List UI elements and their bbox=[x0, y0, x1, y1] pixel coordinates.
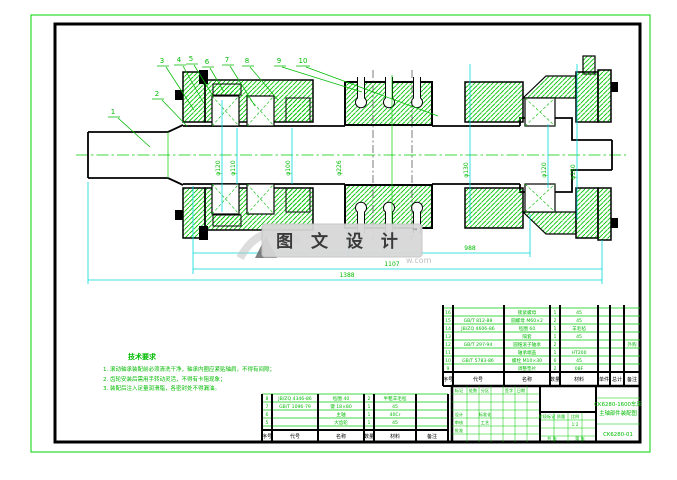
technical-notes: 技术要求 1. 滚动轴承装配前必须清洗干净，轴承内圈应紧贴轴肩，不得有间隙； 2… bbox=[103, 352, 275, 392]
scale-value: 1:2 bbox=[572, 422, 579, 427]
cell: 1 bbox=[554, 310, 557, 316]
drawing-title-line2: 主轴部件装配图 bbox=[599, 409, 637, 417]
cell: 8 bbox=[266, 396, 269, 402]
cap-bolt bbox=[175, 210, 183, 220]
balloon-10: 10 bbox=[299, 57, 308, 65]
cell: 40Cr bbox=[390, 412, 401, 418]
header-cell: 材料 bbox=[390, 433, 400, 440]
cell: 9 bbox=[447, 366, 450, 372]
watermark-corner-mark: ™ bbox=[412, 228, 418, 235]
notes-heading: 技术要求 bbox=[128, 352, 157, 361]
cell: 14 bbox=[445, 326, 451, 332]
cell: 7 bbox=[266, 404, 269, 410]
bom-right-cells: 16锁紧螺母145 15GB/T 812-88圆螺母 M60×2245 14JB… bbox=[445, 309, 637, 372]
cell: 45 bbox=[576, 358, 582, 364]
dim-phi-right-outer: φ130 bbox=[463, 162, 470, 178]
header-cell: 序号 bbox=[443, 376, 453, 383]
balloon-3: 3 bbox=[160, 57, 164, 65]
drawing-number: CK6280-01 bbox=[603, 432, 633, 438]
note-line: 1. 滚动轴承装配前必须清洗干净，轴承内圈应紧贴轴肩，不得有间隙； bbox=[103, 365, 275, 373]
cell: 毡圈 40 bbox=[333, 395, 350, 402]
dim-phi-gear: φ226 bbox=[336, 160, 343, 176]
cell: 2 bbox=[554, 318, 557, 324]
header-cell: 总计 bbox=[612, 376, 622, 383]
cell: 1 bbox=[368, 412, 371, 418]
field-label: 共 张 bbox=[547, 435, 558, 442]
cell: 调整垫片 bbox=[518, 365, 537, 372]
watermark-url: w.com bbox=[406, 256, 432, 265]
cell: 6 bbox=[554, 358, 557, 364]
field-label: 标记 bbox=[455, 387, 464, 394]
cell: 45 bbox=[576, 334, 582, 340]
cell: 45 bbox=[392, 404, 398, 410]
balloon-4: 4 bbox=[177, 56, 182, 64]
title-block-title: CK6280-1600车床 主轴部件装配图 CK6280-01 bbox=[594, 400, 642, 438]
header-cell: 名称 bbox=[336, 433, 346, 440]
note-line: 2. 齿轮安装后需用手转动灵活，不得有卡阻现象； bbox=[103, 375, 226, 383]
field-label: 工艺 bbox=[481, 420, 489, 425]
field-label: 审核 bbox=[455, 419, 464, 426]
balloon-2: 2 bbox=[155, 90, 159, 98]
title-block: 标记 处数 分区 签字 日期 设计 审核 标准化 工艺 批准 阶段标记 质量 比… bbox=[452, 386, 642, 442]
cell: 羊毛毡 bbox=[572, 325, 586, 332]
cell: 08F bbox=[575, 366, 584, 372]
cell: 5 bbox=[266, 420, 269, 426]
dim-phi-left-outer: φ120 bbox=[215, 160, 222, 176]
balloon-7: 7 bbox=[225, 56, 229, 64]
cell: 2 bbox=[554, 342, 557, 348]
watermark-label: 图 文 设 计 bbox=[276, 231, 404, 252]
cell: JB/ZQ 4606-86 bbox=[460, 326, 495, 332]
dim-label-1388: 1388 bbox=[339, 272, 354, 279]
dim-label-988: 988 bbox=[464, 245, 476, 252]
field-label: 标准化 bbox=[479, 411, 492, 418]
drawing-title-line1: CK6280-1600车床 bbox=[594, 400, 642, 408]
balloon-6: 6 bbox=[205, 58, 210, 66]
field-label: 处数 bbox=[469, 387, 478, 394]
balloon-9: 9 bbox=[277, 57, 281, 65]
dim-phi-right-end: φ150 bbox=[570, 164, 577, 180]
field-label: 批准 bbox=[455, 427, 463, 434]
cell: 1 bbox=[368, 420, 371, 426]
header-cell: 名称 bbox=[522, 376, 532, 383]
field-label: 分区 bbox=[481, 387, 489, 394]
bom-table-bottom: 8JB/ZQ 4346-86毡圈 402半粗羊毛毡 7GB/T 1096-79键… bbox=[262, 394, 448, 442]
dim-phi-right-mid: φ120 bbox=[541, 162, 548, 178]
cell: 轴承端盖 bbox=[518, 349, 537, 356]
header-cell: 备注 bbox=[427, 433, 437, 440]
cell: 12 bbox=[445, 342, 451, 348]
cell: 圆锥滚子轴承 bbox=[513, 341, 541, 348]
cell: JB/ZQ 4346-86 bbox=[277, 396, 312, 402]
bom-right-headers: 序号 代号 名称 数量 材料 单件 总计 备注 bbox=[443, 376, 637, 383]
header-cell: 代号 bbox=[290, 433, 300, 440]
cell: 15 bbox=[445, 318, 451, 324]
cell: 11 bbox=[445, 350, 451, 356]
header-cell: 代号 bbox=[473, 376, 483, 383]
bom-bottom-cells: 8JB/ZQ 4346-86毡圈 402半粗羊毛毡 7GB/T 1096-79键… bbox=[266, 395, 407, 426]
cell: 外购 bbox=[627, 341, 637, 348]
cell: GB/T 5783-86 bbox=[462, 358, 494, 364]
header-cell: 数量 bbox=[364, 433, 374, 440]
cell: GB/T 1096-79 bbox=[279, 404, 311, 410]
balloon-5: 5 bbox=[189, 55, 193, 63]
cell: 2 bbox=[368, 396, 371, 402]
cell: 大齿轮 bbox=[334, 419, 348, 426]
header-cell: 材料 bbox=[574, 376, 584, 383]
field-label: 阶段标记 bbox=[539, 413, 557, 420]
cell: 1 bbox=[554, 350, 557, 356]
bom-table-right: 16锁紧螺母145 15GB/T 812-88圆螺母 M60×2245 14JB… bbox=[443, 305, 640, 386]
cell: 45 bbox=[576, 310, 582, 316]
cell: HT200 bbox=[571, 350, 586, 356]
cell: GB/T 812-88 bbox=[464, 318, 493, 324]
cad-drawing-page: 1 2 3 4 5 6 7 8 9 10 988 1107 1388 φ120 … bbox=[0, 0, 677, 480]
field-label: 设计 bbox=[455, 411, 463, 418]
watermark: 图 文 设 计 ™ w.com bbox=[240, 224, 432, 265]
field-label: 签字 bbox=[505, 387, 513, 393]
cell: 10 bbox=[445, 358, 451, 364]
dim-label-1107: 1107 bbox=[384, 261, 399, 268]
drawing-canvas: 1 2 3 4 5 6 7 8 9 10 988 1107 1388 φ120 … bbox=[0, 0, 677, 480]
cell: 半粗羊毛毡 bbox=[384, 395, 407, 402]
cell: 主轴 bbox=[336, 411, 346, 418]
field-label: 比例 bbox=[571, 413, 579, 420]
header-cell: 序号 bbox=[262, 433, 272, 440]
dim-phi-left-inner: φ100 bbox=[285, 160, 292, 176]
header-cell: 单件 bbox=[599, 376, 609, 383]
right-bearing-housing bbox=[465, 56, 618, 240]
balloon-1: 1 bbox=[111, 108, 115, 116]
dim-phi-left-mid: φ110 bbox=[230, 160, 237, 176]
cell: 6 bbox=[266, 412, 269, 418]
cell: 1 bbox=[554, 326, 557, 332]
note-line: 3. 装配后注入足量润滑脂，各密封处不得漏油。 bbox=[103, 384, 220, 392]
field-label: 质量 bbox=[557, 413, 565, 420]
cell: 螺栓 M10×30 bbox=[512, 357, 542, 364]
cell: 45 bbox=[392, 420, 398, 426]
cell: 锁紧螺母 bbox=[518, 309, 537, 316]
cell: 1 bbox=[554, 334, 557, 340]
cell: 2 bbox=[554, 366, 557, 372]
cell: 圆螺母 M60×2 bbox=[511, 317, 543, 324]
cell: 45 bbox=[576, 318, 582, 324]
cell: 16 bbox=[445, 310, 451, 316]
balloon-8: 8 bbox=[245, 57, 249, 65]
cell: 隔套 bbox=[522, 333, 532, 340]
header-cell: 备注 bbox=[627, 376, 637, 383]
cell: 13 bbox=[445, 334, 451, 340]
cell: 键 18×80 bbox=[330, 403, 352, 410]
field-label: 日期 bbox=[517, 388, 525, 394]
field-label: 第 张 bbox=[575, 435, 586, 442]
cell: GB/T 297-94 bbox=[464, 342, 493, 348]
cell: 1 bbox=[368, 404, 371, 410]
header-cell: 数量 bbox=[550, 376, 560, 383]
bom-bottom-headers: 序号 代号 名称 数量 材料 备注 bbox=[262, 433, 437, 440]
cell: 毡圈 60 bbox=[519, 325, 536, 332]
